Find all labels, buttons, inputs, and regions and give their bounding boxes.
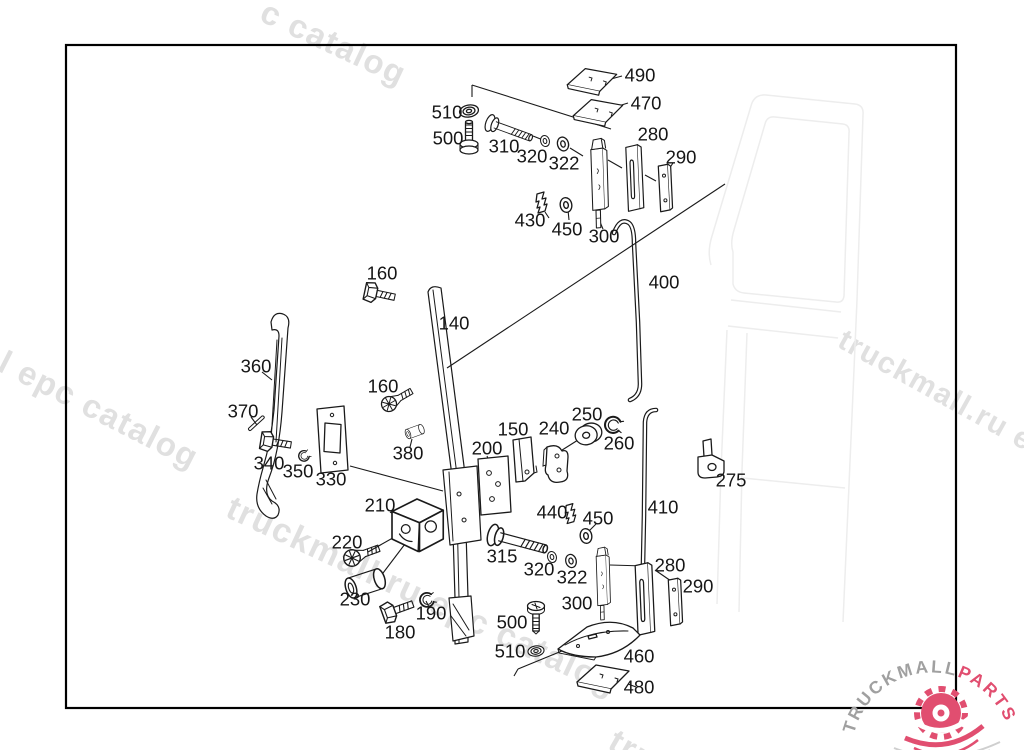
door-belt-line-1 bbox=[731, 300, 841, 312]
part-number-layer: 4904705105003103203222802904304503004001… bbox=[228, 65, 747, 698]
part-label-370-16: 370 bbox=[228, 401, 259, 422]
part-label-320-5: 320 bbox=[517, 146, 548, 167]
part-label-330-20: 330 bbox=[316, 469, 347, 490]
leader-line-5 bbox=[608, 160, 622, 168]
part-label-160-17: 160 bbox=[368, 376, 399, 397]
bolt-160-top bbox=[363, 281, 397, 307]
part-label-400-12: 400 bbox=[649, 272, 680, 293]
plate-280-top bbox=[626, 145, 644, 212]
plate-280-bottom bbox=[635, 563, 655, 636]
part-label-150-23: 150 bbox=[498, 419, 529, 440]
bushing-380 bbox=[404, 424, 425, 440]
part-label-180-33: 180 bbox=[385, 622, 416, 643]
part-label-350-19: 350 bbox=[283, 461, 314, 482]
plate-290-top bbox=[658, 164, 672, 212]
part-label-360-15: 360 bbox=[241, 356, 272, 377]
part-label-310-4: 310 bbox=[489, 136, 520, 157]
striker-210 bbox=[392, 499, 443, 552]
part-label-500-3: 500 bbox=[433, 128, 464, 149]
part-label-220-30: 220 bbox=[332, 532, 363, 553]
leader-line-10 bbox=[447, 184, 725, 368]
part-label-190-32: 190 bbox=[416, 603, 447, 624]
washer-322-top bbox=[556, 136, 570, 152]
lock-body-300-top bbox=[591, 138, 609, 228]
gear-hub bbox=[938, 710, 945, 717]
washer-250 bbox=[574, 422, 604, 447]
rod-400 bbox=[614, 221, 640, 400]
exploded-parts-diagram: c catalogl epc catalogtruckmall.ru epc c… bbox=[0, 0, 1024, 750]
leader-line-11 bbox=[350, 466, 443, 491]
part-label-280-42: 280 bbox=[655, 555, 686, 576]
part-label-300-39: 300 bbox=[562, 593, 593, 614]
leader-line-7 bbox=[545, 212, 549, 218]
washer-450-top bbox=[559, 197, 573, 213]
part-label-260-26: 260 bbox=[604, 433, 635, 454]
leader-line-6 bbox=[645, 175, 656, 181]
part-label-340-18: 340 bbox=[254, 453, 285, 474]
part-label-490-0: 490 bbox=[625, 65, 656, 86]
part-layer bbox=[247, 69, 724, 693]
bracket-150 bbox=[513, 437, 537, 482]
part-label-480-45: 480 bbox=[624, 677, 655, 698]
part-label-210-29: 210 bbox=[365, 495, 396, 516]
part-label-500-40: 500 bbox=[497, 612, 528, 633]
part-label-410-28: 410 bbox=[648, 497, 679, 518]
rail-140-plate bbox=[443, 466, 481, 545]
part-label-440-37: 440 bbox=[537, 502, 568, 523]
parts-diagram-page: c catalogl epc catalogtruckmall.ru epc c… bbox=[0, 0, 1024, 750]
part-label-290-43: 290 bbox=[683, 576, 714, 597]
part-label-322-36: 322 bbox=[557, 567, 588, 588]
part-label-200-22: 200 bbox=[472, 438, 503, 459]
watermark-layer: c catalogl epc catalogtruckmall.ru epc c… bbox=[0, 0, 1024, 750]
truckmall-logo: TRUCKMALLPARTS bbox=[839, 656, 1022, 750]
part-label-460-44: 460 bbox=[624, 646, 655, 667]
part-label-470-1: 470 bbox=[631, 93, 662, 114]
part-label-320-35: 320 bbox=[524, 559, 555, 580]
part-label-250-25: 250 bbox=[572, 404, 603, 425]
plate-470 bbox=[573, 100, 622, 127]
part-label-510-2: 510 bbox=[432, 102, 463, 123]
part-label-290-8: 290 bbox=[666, 147, 697, 168]
part-label-140-14: 140 bbox=[439, 313, 470, 334]
part-label-275-27: 275 bbox=[716, 470, 747, 491]
leader-line-23 bbox=[514, 669, 518, 676]
part-label-315-34: 315 bbox=[487, 546, 518, 567]
part-label-240-24: 240 bbox=[539, 418, 570, 439]
lock-body-300-bottom bbox=[596, 547, 610, 620]
plate-490 bbox=[567, 69, 616, 96]
watermark-text-1: l epc catalog bbox=[0, 343, 205, 476]
plate-330 bbox=[317, 406, 348, 473]
plate-290-bottom bbox=[668, 578, 682, 626]
part-label-450-10: 450 bbox=[552, 219, 583, 240]
part-label-510-41: 510 bbox=[495, 641, 526, 662]
plate-200 bbox=[478, 456, 511, 515]
part-label-230-31: 230 bbox=[340, 589, 371, 610]
leader-line-layer bbox=[251, 76, 725, 687]
door-window bbox=[732, 117, 849, 302]
washer-450-bottom bbox=[579, 528, 593, 544]
part-label-300-11: 300 bbox=[589, 226, 620, 247]
watermark-text-3: truckmall.ru e bbox=[833, 323, 1024, 457]
part-label-430-9: 430 bbox=[515, 210, 546, 231]
door-outline bbox=[709, 95, 863, 622]
part-label-280-7: 280 bbox=[638, 124, 669, 145]
door-belt-line-2 bbox=[728, 326, 838, 338]
cam-240 bbox=[543, 446, 568, 483]
part-label-380-21: 380 bbox=[393, 443, 424, 464]
watermark-text-0: c catalog bbox=[255, 0, 413, 93]
part-label-160-13: 160 bbox=[367, 263, 398, 284]
part-label-322-6: 322 bbox=[549, 153, 580, 174]
door-lower-line bbox=[743, 478, 845, 488]
part-label-450-38: 450 bbox=[583, 508, 614, 529]
watermark-text-4: truckma bbox=[602, 722, 745, 750]
